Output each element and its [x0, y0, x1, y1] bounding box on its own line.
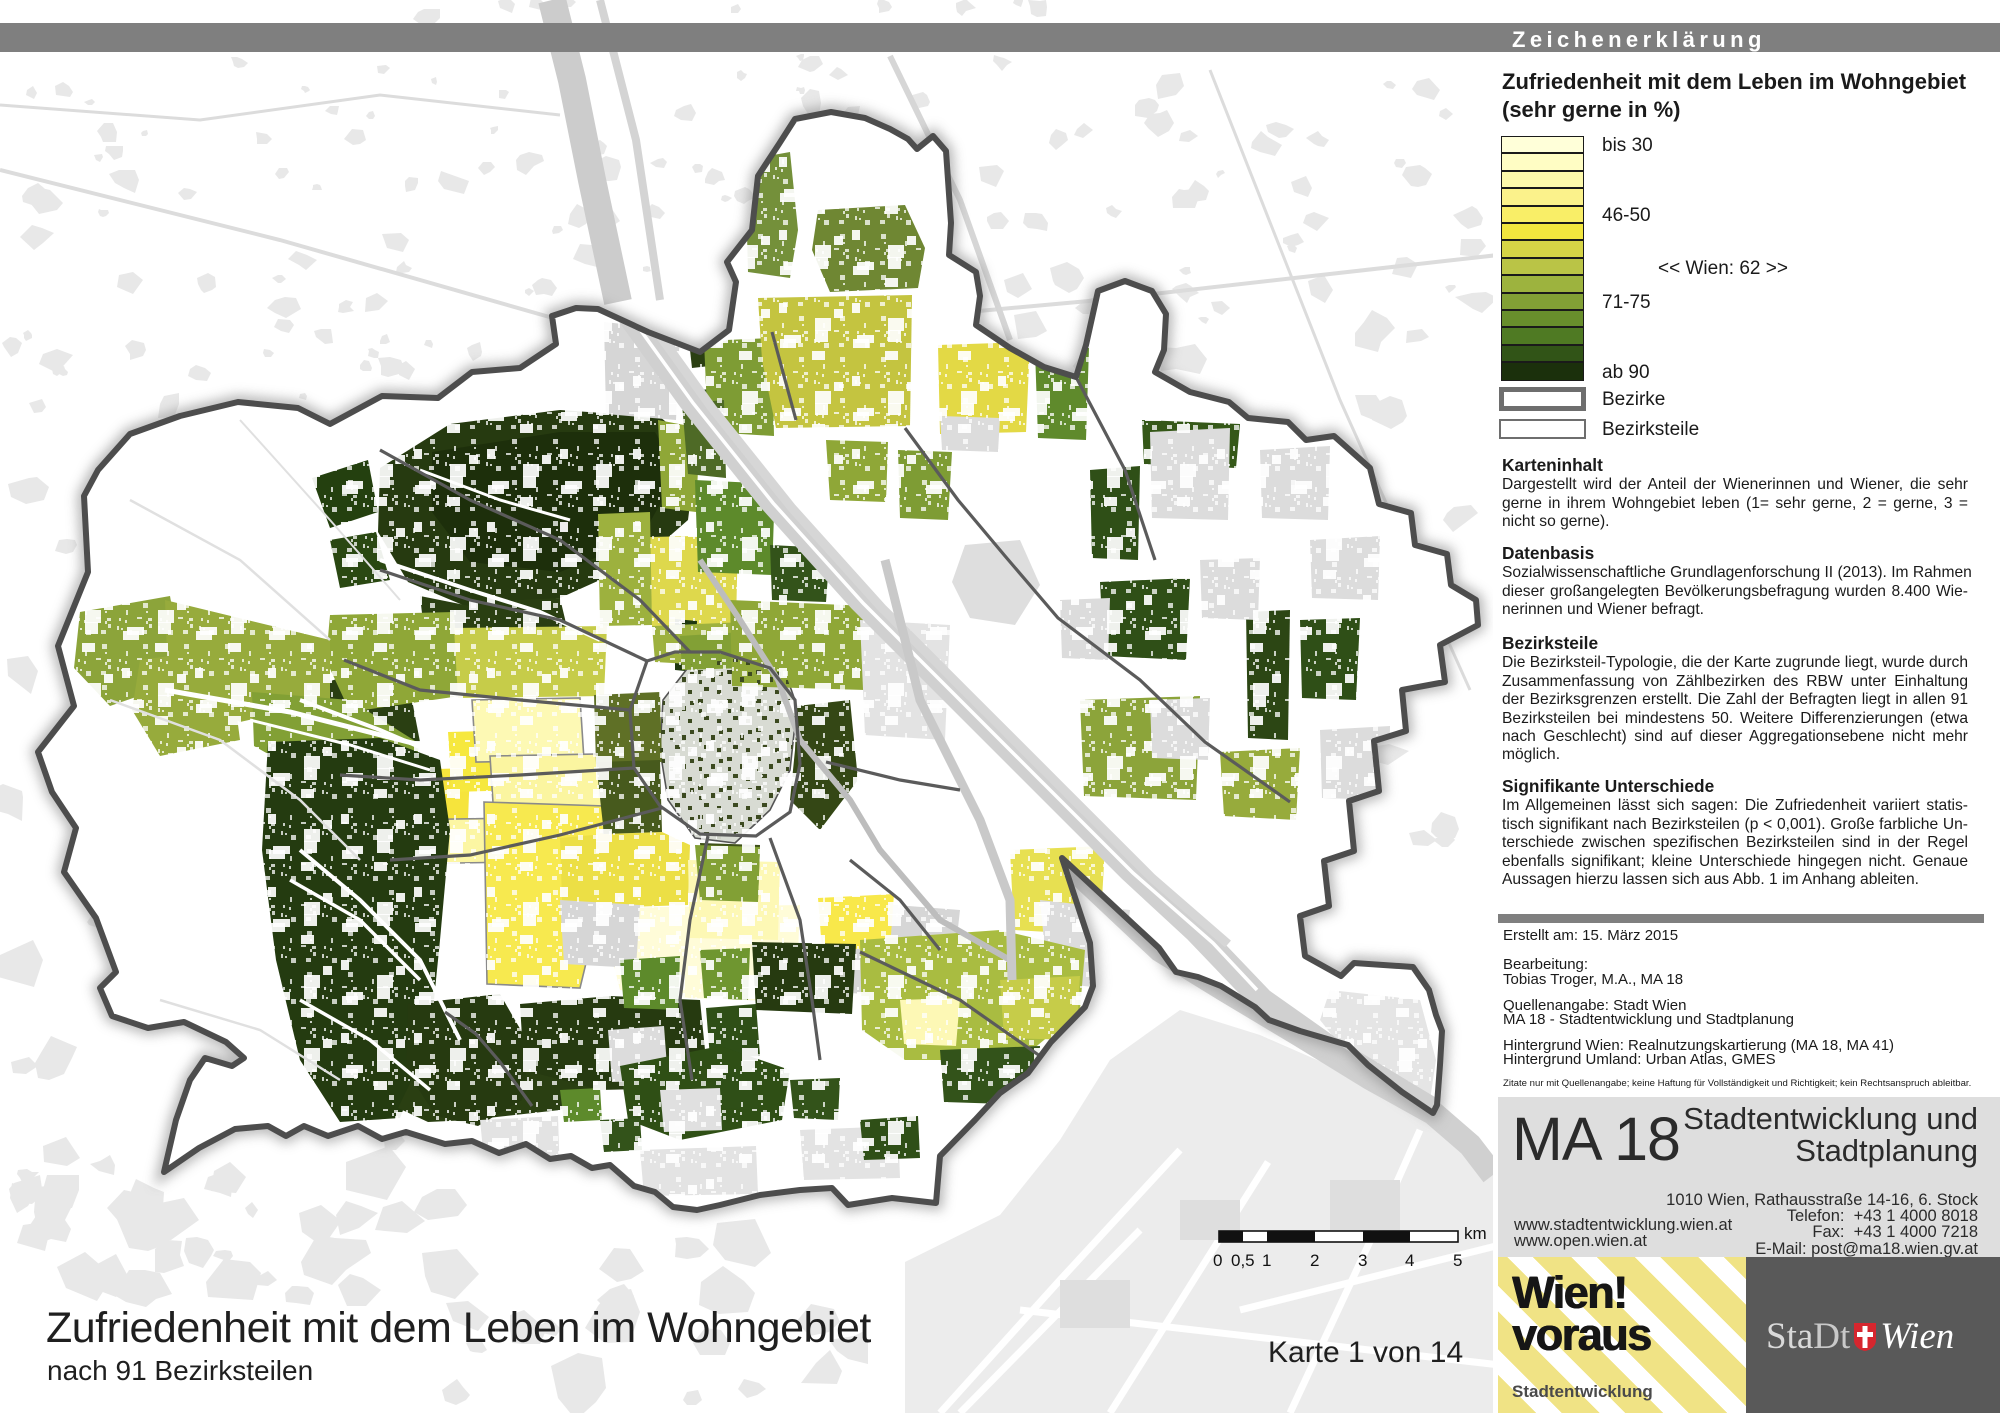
svg-text:3: 3 — [1358, 1251, 1367, 1270]
svg-text:km: km — [1464, 1224, 1487, 1243]
svg-text:2: 2 — [1310, 1251, 1319, 1270]
svg-text:0,5: 0,5 — [1231, 1251, 1255, 1270]
svg-text:1: 1 — [1262, 1251, 1271, 1270]
svg-text:5: 5 — [1453, 1251, 1462, 1270]
svg-text:4: 4 — [1405, 1251, 1414, 1270]
svg-text:0: 0 — [1213, 1251, 1222, 1270]
